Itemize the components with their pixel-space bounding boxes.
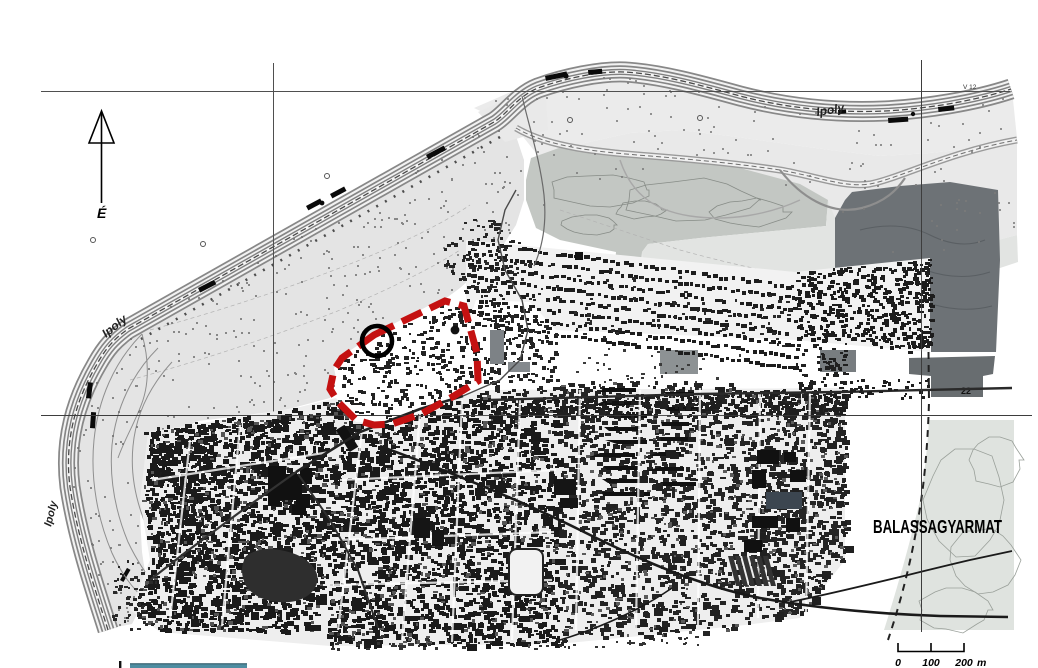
- svg-text:É: É: [97, 205, 107, 221]
- svg-text:m: m: [977, 657, 986, 668]
- svg-text:BALASSAGYARMAT: BALASSAGYARMAT: [873, 516, 1002, 537]
- svg-text:100: 100: [922, 657, 940, 668]
- svg-text:V 12: V 12: [963, 84, 977, 91]
- svg-text:200: 200: [954, 657, 973, 668]
- svg-text:22: 22: [961, 386, 971, 396]
- svg-text:0: 0: [895, 657, 901, 668]
